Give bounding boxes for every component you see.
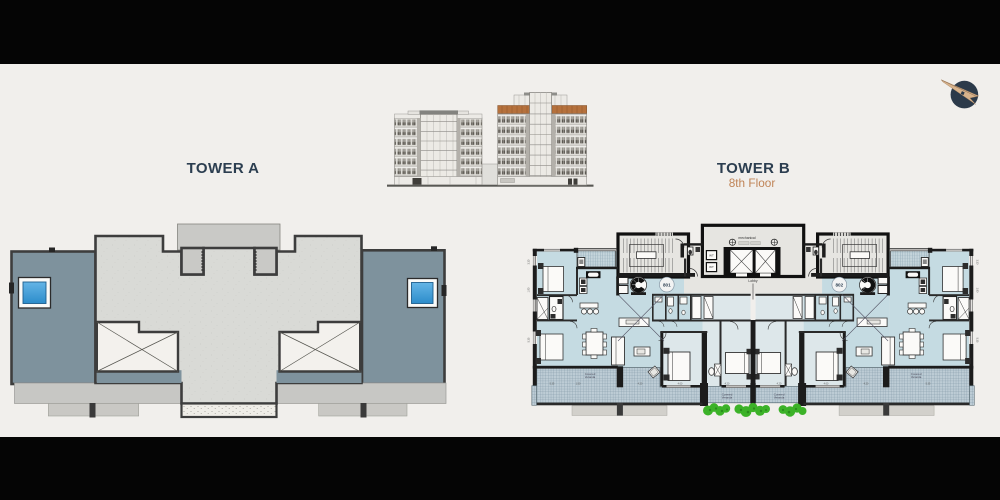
svg-text:TOWER A: TOWER A bbox=[187, 160, 260, 177]
svg-text:4.60: 4.60 bbox=[678, 382, 683, 385]
svg-text:WT: WT bbox=[709, 254, 714, 258]
svg-text:5.35: 5.35 bbox=[976, 338, 979, 343]
svg-text:5.35: 5.35 bbox=[550, 382, 555, 385]
svg-text:Veranda: Veranda bbox=[722, 396, 733, 400]
svg-text:4.20: 4.20 bbox=[777, 382, 782, 385]
svg-text:Veranda: Veranda bbox=[911, 375, 922, 379]
svg-text:4.20: 4.20 bbox=[725, 382, 730, 385]
svg-text:8th Floor: 8th Floor bbox=[729, 176, 776, 190]
svg-text:TOWER B: TOWER B bbox=[717, 160, 790, 177]
svg-text:1.90: 1.90 bbox=[976, 288, 979, 293]
svg-text:mechanical: mechanical bbox=[738, 236, 755, 240]
svg-text:802: 802 bbox=[835, 282, 843, 287]
svg-text:3.30: 3.30 bbox=[976, 260, 979, 265]
svg-text:Lobby: Lobby bbox=[748, 279, 758, 283]
svg-text:5.35: 5.35 bbox=[528, 337, 531, 342]
svg-text:4.60: 4.60 bbox=[824, 382, 829, 385]
svg-text:1.50: 1.50 bbox=[576, 382, 581, 385]
svg-text:Veranda: Veranda bbox=[585, 375, 596, 379]
svg-text:Veranda: Veranda bbox=[774, 396, 785, 400]
svg-text:WT: WT bbox=[709, 265, 714, 269]
svg-text:4.20: 4.20 bbox=[638, 382, 643, 385]
svg-text:1.90: 1.90 bbox=[528, 287, 531, 292]
svg-text:801: 801 bbox=[663, 282, 671, 287]
svg-text:4.20: 4.20 bbox=[864, 382, 869, 385]
svg-text:3.30: 3.30 bbox=[528, 259, 531, 264]
svg-text:5.35: 5.35 bbox=[926, 382, 931, 385]
